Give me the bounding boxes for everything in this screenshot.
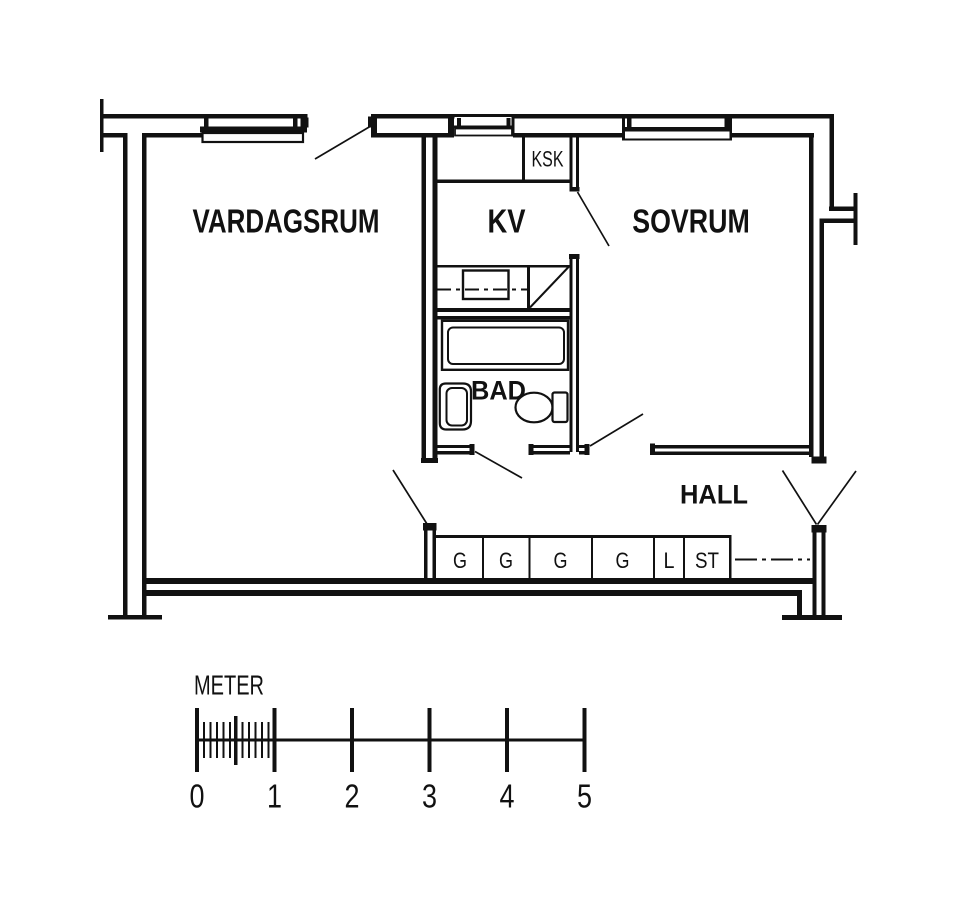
svg-text:SOVRUM: SOVRUM	[632, 203, 750, 240]
svg-text:KSK: KSK	[532, 147, 564, 172]
svg-text:G: G	[616, 548, 630, 573]
svg-text:HALL: HALL	[680, 480, 748, 510]
svg-text:1: 1	[267, 778, 282, 815]
svg-text:ST: ST	[695, 548, 719, 573]
svg-text:0: 0	[190, 778, 205, 815]
svg-text:KV: KV	[488, 203, 526, 240]
svg-text:5: 5	[577, 778, 592, 815]
svg-text:METER: METER	[194, 670, 264, 701]
svg-text:2: 2	[345, 778, 360, 815]
svg-text:BAD: BAD	[471, 376, 526, 406]
svg-text:VARDAGSRUM: VARDAGSRUM	[193, 203, 380, 240]
svg-text:G: G	[554, 548, 568, 573]
svg-text:L: L	[664, 548, 675, 573]
svg-text:4: 4	[500, 778, 515, 815]
svg-text:3: 3	[422, 778, 437, 815]
svg-text:G: G	[499, 548, 513, 573]
svg-text:G: G	[453, 548, 467, 573]
